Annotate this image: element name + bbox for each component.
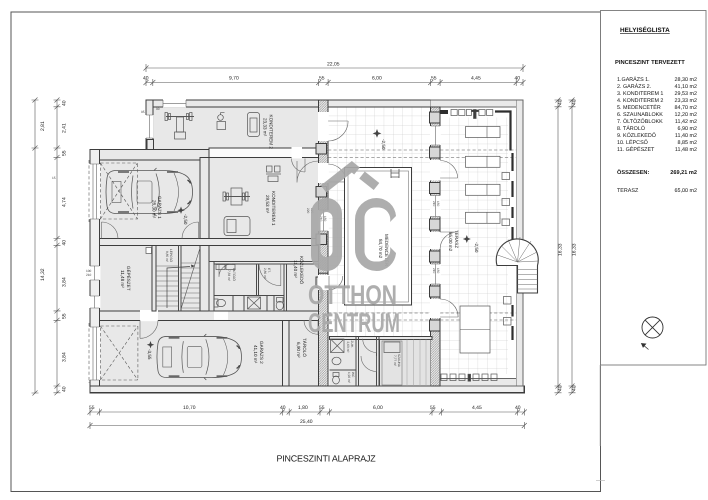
svg-text:23,33 m²: 23,33 m² — [263, 118, 268, 137]
svg-text:-3,55: -3,55 — [147, 349, 152, 360]
svg-text:9,70: 9,70 — [229, 76, 239, 82]
svg-text:KÖZLEKEDŐ: KÖZLEKEDŐ — [299, 256, 304, 285]
svg-text:4,45: 4,45 — [472, 405, 482, 411]
svg-text:15: 15 — [52, 176, 56, 180]
svg-text:11,48 m2: 11,48 m2 — [675, 147, 697, 153]
svg-text:6,90 m²: 6,90 m² — [296, 342, 301, 358]
svg-text:65,00 m2: 65,00 m2 — [448, 232, 453, 252]
svg-text:10,70: 10,70 — [183, 405, 196, 411]
svg-text:12,20 m2: 12,20 m2 — [675, 112, 697, 118]
svg-text:41,10 m2: 41,10 m2 — [675, 84, 697, 90]
svg-text:TÁROLÓ: TÁROLÓ — [302, 338, 307, 357]
svg-text:16,33: 16,33 — [558, 243, 564, 256]
svg-text:25,40: 25,40 — [300, 419, 313, 425]
svg-text:55: 55 — [62, 313, 68, 319]
svg-text:3,84: 3,84 — [62, 277, 68, 287]
svg-text:6,00: 6,00 — [373, 405, 383, 411]
svg-text:40: 40 — [515, 405, 521, 411]
svg-text:-2,50: -2,50 — [474, 242, 479, 253]
svg-text:OTTHON: OTTHON — [308, 280, 397, 310]
svg-text:55: 55 — [89, 405, 95, 411]
svg-text:3,84: 3,84 — [62, 352, 68, 362]
svg-text:29,53 m2: 29,53 m2 — [675, 91, 697, 97]
svg-text:7. ÖLTÖZŐBLOKK: 7. ÖLTÖZŐBLOKK — [617, 118, 663, 125]
svg-text:16,33: 16,33 — [572, 243, 578, 256]
svg-text:8,85 m2: 8,85 m2 — [678, 140, 697, 146]
svg-text:55: 55 — [319, 405, 325, 411]
svg-text:1.GARÁZS 1.: 1.GARÁZS 1. — [617, 76, 650, 83]
svg-text:95: 95 — [141, 110, 145, 114]
svg-text:14,32: 14,32 — [40, 268, 46, 281]
svg-text:GÉPÉSZET: GÉPÉSZET — [126, 266, 131, 291]
svg-text:55: 55 — [430, 405, 436, 411]
svg-text:ÖLTÖZŐ: ÖLTÖZŐ — [232, 268, 236, 281]
svg-text:40: 40 — [572, 99, 578, 105]
svg-text:22,05: 22,05 — [327, 62, 340, 68]
svg-text:6,90 m2: 6,90 m2 — [678, 126, 697, 132]
svg-text:2,63 m²: 2,63 m² — [346, 342, 350, 353]
svg-text:90: 90 — [156, 107, 160, 111]
svg-text:4,45: 4,45 — [471, 76, 481, 82]
svg-text:GARÁZS 1: GARÁZS 1 — [157, 196, 162, 219]
svg-text:-2,50: -2,50 — [381, 139, 386, 150]
svg-text:10. LÉPCSŐ: 10. LÉPCSŐ — [617, 139, 648, 146]
svg-text:65,00 m2: 65,00 m2 — [675, 188, 697, 194]
svg-text:2,80 m²: 2,80 m² — [263, 268, 267, 279]
svg-text:29,53 m²: 29,53 m² — [265, 195, 270, 214]
svg-text:3. KONDITEREM 1: 3. KONDITEREM 1 — [617, 91, 663, 97]
svg-text:CENTRUM: CENTRUM — [308, 308, 400, 338]
svg-text:-2,50: -2,50 — [183, 214, 188, 225]
svg-text:41,10 m²: 41,10 m² — [253, 345, 258, 364]
svg-text:4. KONDITEREM 2: 4. KONDITEREM 2 — [617, 98, 663, 104]
svg-text:1,80: 1,80 — [298, 405, 308, 411]
svg-text:269,21 m2: 269,21 m2 — [670, 170, 697, 176]
svg-text:40: 40 — [62, 240, 68, 246]
svg-text:55: 55 — [62, 150, 68, 156]
svg-text:40: 40 — [572, 385, 578, 391]
svg-text:7,77 m²: 7,77 m² — [393, 355, 397, 366]
svg-text:TERASZ: TERASZ — [454, 230, 459, 248]
svg-text:210: 210 — [432, 268, 436, 274]
svg-text:11,42 m2: 11,42 m2 — [675, 119, 697, 125]
svg-text:ÖSSZESEN:: ÖSSZESEN: — [617, 169, 649, 176]
svg-text:4,74: 4,74 — [62, 197, 68, 207]
svg-text:55: 55 — [431, 76, 437, 82]
svg-text:210: 210 — [86, 273, 92, 277]
svg-text:40: 40 — [280, 405, 286, 411]
svg-text:11,48 m²: 11,48 m² — [120, 270, 125, 288]
svg-text:40: 40 — [62, 100, 68, 106]
svg-text:HELYISÉGLISTA: HELYISÉGLISTA — [620, 26, 670, 34]
svg-text:7,33 m²: 7,33 m² — [227, 270, 231, 281]
svg-text:GARÁZS 2: GARÁZS 2 — [259, 341, 264, 364]
svg-text:11,40 m2: 11,40 m2 — [675, 133, 697, 139]
svg-text:40: 40 — [558, 99, 564, 105]
svg-text:PINCESZINT TERVEZETT: PINCESZINT TERVEZETT — [615, 59, 685, 66]
svg-text:40: 40 — [62, 386, 68, 392]
svg-text:TERASZ: TERASZ — [617, 188, 639, 194]
svg-text:11. GÉPÉSZET: 11. GÉPÉSZET — [617, 146, 655, 153]
svg-text:5. MEDENCETÉR: 5. MEDENCETÉR — [617, 104, 661, 111]
svg-text:8. TÁROLÓ: 8. TÁROLÓ — [617, 125, 645, 132]
svg-text:210: 210 — [432, 201, 436, 207]
svg-text:2,81: 2,81 — [40, 121, 46, 131]
svg-text:8,85 m²: 8,85 m² — [165, 251, 169, 262]
svg-text:11,40 m²: 11,40 m² — [293, 260, 298, 278]
svg-text:40: 40 — [558, 385, 564, 391]
svg-text:6,00: 6,00 — [372, 76, 382, 82]
svg-text:23,33 m2: 23,33 m2 — [675, 98, 697, 104]
svg-text:40: 40 — [143, 76, 149, 82]
svg-text:55: 55 — [319, 76, 325, 82]
svg-text:84,70 m2: 84,70 m2 — [378, 239, 383, 259]
svg-text:84,70 m2: 84,70 m2 — [675, 105, 697, 111]
svg-text:1,92 m²: 1,92 m² — [347, 372, 351, 383]
svg-text:40: 40 — [515, 76, 521, 82]
svg-text:9. KÖZLEKEDŐ: 9. KÖZLEKEDŐ — [617, 132, 656, 139]
svg-text:KONDITEREM 1: KONDITEREM 1 — [271, 191, 276, 226]
svg-text:2. GARÁZS 2.: 2. GARÁZS 2. — [617, 83, 651, 90]
svg-text:2,41: 2,41 — [62, 123, 68, 133]
svg-text:KONDITEREM 2: KONDITEREM 2 — [269, 115, 274, 150]
svg-text:PINCESZINTI ALAPRAJZ: PINCESZINTI ALAPRAJZ — [276, 454, 376, 464]
svg-text:28,30 m²: 28,30 m² — [152, 200, 157, 219]
svg-text:6. SZAUNABLOKK: 6. SZAUNABLOKK — [617, 112, 663, 118]
svg-text:28,30 m2: 28,30 m2 — [675, 77, 697, 83]
svg-text:220: 220 — [306, 208, 310, 214]
